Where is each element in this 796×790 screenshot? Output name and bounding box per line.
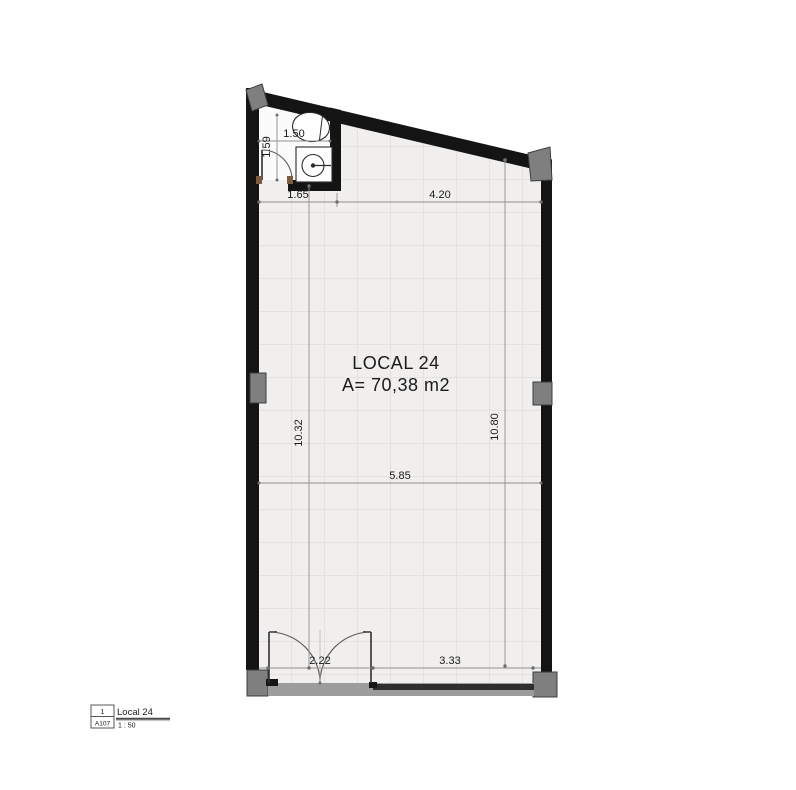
column-bottom-left — [247, 670, 268, 696]
dim-bath-width: 1.50 — [283, 128, 304, 140]
view-scale: 1 : 50 — [118, 723, 136, 730]
column-mid-right — [533, 382, 552, 405]
sink-fixture — [296, 147, 332, 182]
floor-plan-drawing: 1.65 4.20 1.50 1.59 10.32 10.80 5.85 2.2… — [0, 0, 796, 790]
bathroom-door-frame-left — [256, 176, 262, 184]
wall-right — [541, 157, 552, 672]
dim-top-seg-left: 1.65 — [287, 189, 308, 201]
sheet-ref: A107 — [95, 721, 111, 728]
column-mid-left — [250, 373, 266, 403]
view-name: Local 24 — [117, 707, 153, 718]
dim-interior-height-left: 10.32 — [293, 419, 305, 447]
view-number: 1 — [101, 709, 105, 716]
dim-interior-height-right: 10.80 — [489, 413, 501, 441]
room-area: A= 70,38 m2 — [342, 375, 450, 395]
floor-plan-canvas: 1.65 4.20 1.50 1.59 10.32 10.80 5.85 2.2… — [0, 0, 796, 790]
dim-storefront-width: 3.33 — [439, 655, 460, 667]
door-jamb-post-left — [266, 679, 278, 686]
dim-top-seg-right: 4.20 — [429, 189, 450, 201]
dim-bath-depth: 1.59 — [261, 136, 273, 157]
room-name: LOCAL 24 — [352, 353, 439, 373]
column-top-right — [528, 147, 552, 181]
storefront-glazing — [373, 684, 534, 690]
dim-interior-width: 5.85 — [389, 470, 410, 482]
bathroom-door-frame-right — [287, 176, 293, 184]
dim-entry-door-width: 2.22 — [309, 655, 330, 667]
column-bottom-right — [533, 672, 557, 697]
view-title-block: 1 A107 Local 24 1 : 50 — [91, 705, 170, 730]
